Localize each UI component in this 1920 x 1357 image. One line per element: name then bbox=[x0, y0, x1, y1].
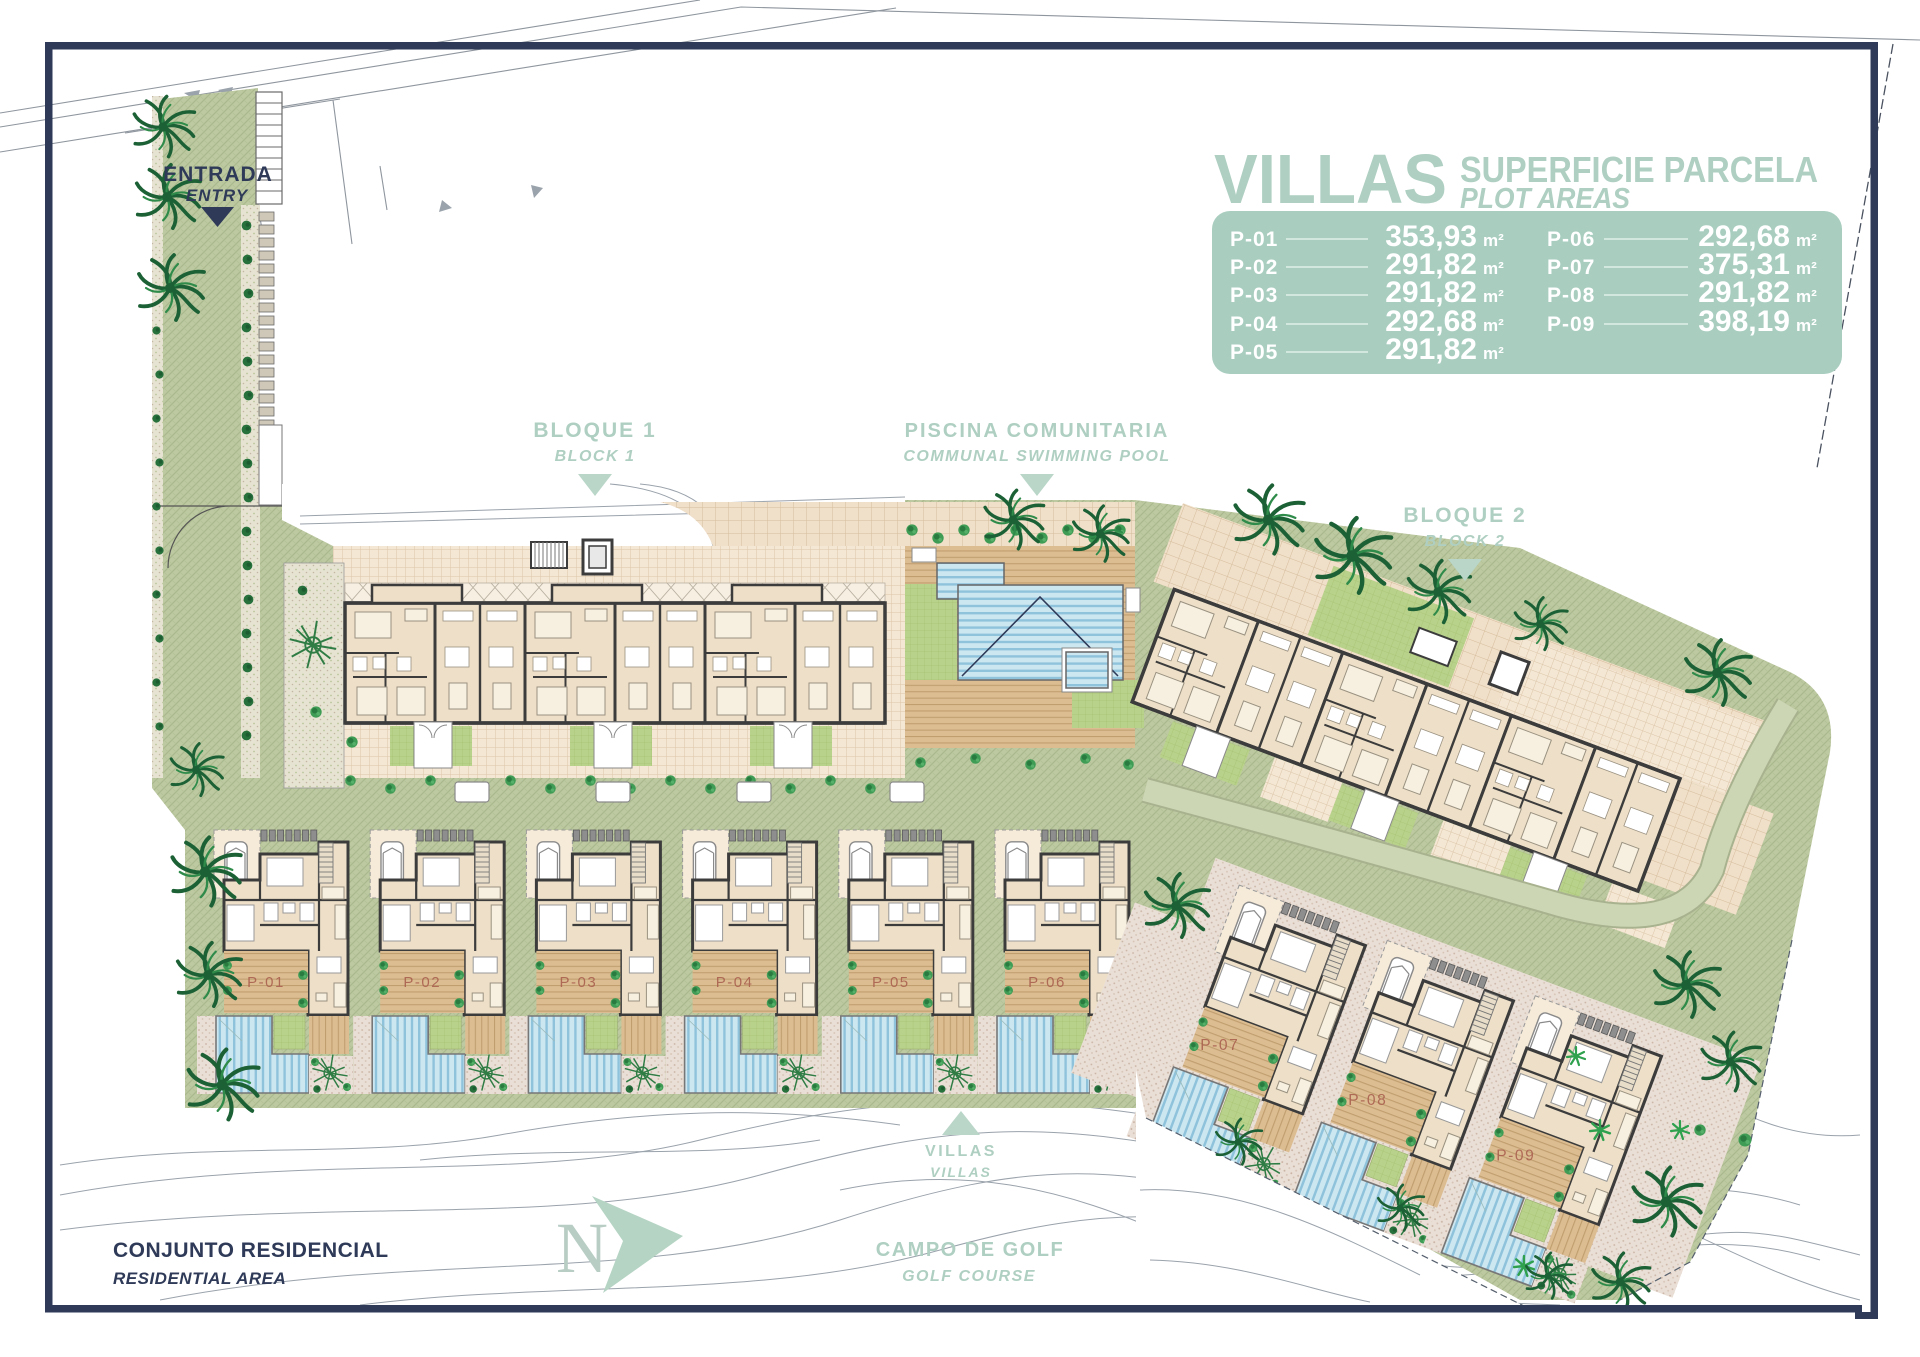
svg-text:P-02: P-02 bbox=[1230, 256, 1278, 279]
svg-text:COMMUNAL SWIMMING POOL: COMMUNAL SWIMMING POOL bbox=[903, 448, 1170, 465]
svg-text:P-08: P-08 bbox=[1348, 1092, 1387, 1109]
svg-text:PLOT AREAS: PLOT AREAS bbox=[1460, 183, 1631, 215]
svg-text:VILLAS: VILLAS bbox=[925, 1143, 997, 1160]
svg-text:m²: m² bbox=[1483, 316, 1504, 335]
svg-text:RESIDENTIAL AREA: RESIDENTIAL AREA bbox=[113, 1269, 286, 1288]
svg-text:P-02: P-02 bbox=[403, 974, 441, 991]
svg-text:m²: m² bbox=[1483, 344, 1504, 363]
svg-text:P-06: P-06 bbox=[1547, 228, 1595, 251]
svg-text:m²: m² bbox=[1483, 259, 1504, 278]
svg-text:CONJUNTO RESIDENCIAL: CONJUNTO RESIDENCIAL bbox=[113, 1239, 389, 1262]
svg-text:P-07: P-07 bbox=[1200, 1037, 1239, 1054]
svg-text:P-05: P-05 bbox=[1230, 341, 1278, 364]
svg-text:N: N bbox=[556, 1208, 608, 1288]
svg-text:P-05: P-05 bbox=[872, 974, 910, 991]
svg-text:CAMPO DE GOLF: CAMPO DE GOLF bbox=[876, 1239, 1064, 1261]
svg-text:P-08: P-08 bbox=[1547, 284, 1595, 307]
svg-text:GOLF COURSE: GOLF COURSE bbox=[902, 1268, 1036, 1285]
svg-text:P-03: P-03 bbox=[560, 974, 598, 991]
svg-text:m²: m² bbox=[1796, 316, 1817, 335]
svg-text:P-07: P-07 bbox=[1547, 256, 1595, 279]
svg-text:ENTRY: ENTRY bbox=[186, 186, 249, 205]
svg-text:VILLAS: VILLAS bbox=[1214, 140, 1447, 218]
svg-text:P-01: P-01 bbox=[1230, 228, 1278, 251]
svg-text:P-03: P-03 bbox=[1230, 284, 1278, 307]
svg-text:P-06: P-06 bbox=[1028, 974, 1066, 991]
svg-text:P-09: P-09 bbox=[1496, 1148, 1535, 1165]
svg-text:P-04: P-04 bbox=[716, 974, 754, 991]
svg-text:ENTRADA: ENTRADA bbox=[163, 163, 273, 186]
svg-text:m²: m² bbox=[1796, 287, 1817, 306]
svg-text:m²: m² bbox=[1796, 231, 1817, 250]
svg-text:m²: m² bbox=[1796, 259, 1817, 278]
svg-text:P-09: P-09 bbox=[1547, 313, 1595, 336]
svg-text:m²: m² bbox=[1483, 231, 1504, 250]
svg-text:m²: m² bbox=[1483, 287, 1504, 306]
svg-text:BLOCK 2: BLOCK 2 bbox=[1425, 533, 1506, 550]
svg-text:PISCINA COMUNITARIA: PISCINA COMUNITARIA bbox=[905, 420, 1170, 442]
svg-text:P-04: P-04 bbox=[1230, 313, 1278, 336]
svg-text:BLOCK 1: BLOCK 1 bbox=[555, 448, 636, 465]
svg-text:P-01: P-01 bbox=[247, 974, 285, 991]
svg-text:VILLAS: VILLAS bbox=[930, 1164, 992, 1180]
svg-text:BLOQUE 1: BLOQUE 1 bbox=[533, 419, 656, 442]
svg-text:BLOQUE 2: BLOQUE 2 bbox=[1403, 504, 1526, 527]
svg-text:398,19: 398,19 bbox=[1698, 305, 1790, 338]
svg-text:291,82: 291,82 bbox=[1385, 333, 1477, 366]
